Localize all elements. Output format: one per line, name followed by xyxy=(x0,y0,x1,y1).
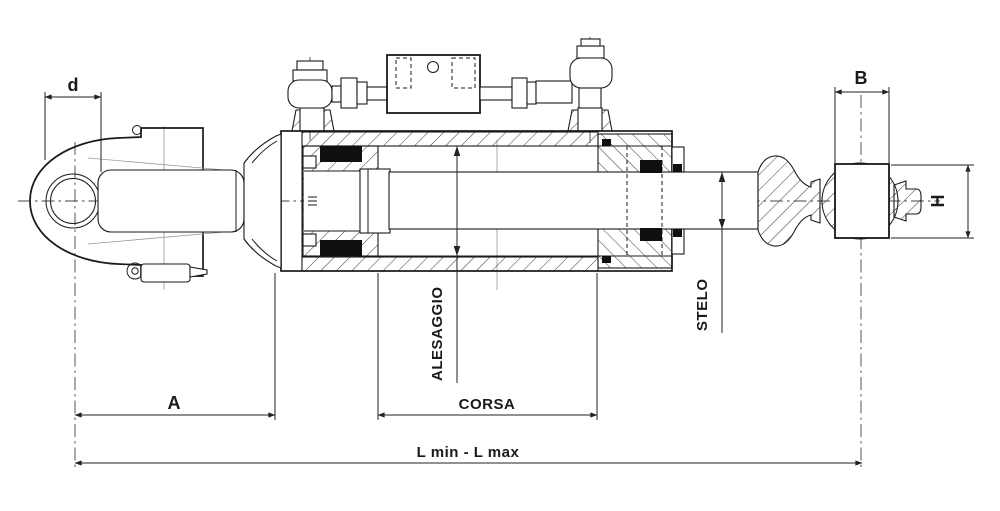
trumpet-bell xyxy=(244,134,281,268)
gland-seal-top xyxy=(640,160,662,173)
dim-label-alesaggio: ALESAGGIO xyxy=(429,286,446,381)
left-port-stem xyxy=(300,108,324,131)
piston xyxy=(303,146,390,256)
ball-housing xyxy=(835,164,889,238)
dim-label-d: d xyxy=(68,75,79,95)
left-tube xyxy=(367,87,387,100)
latch-tab xyxy=(190,267,207,277)
dimension-d: d xyxy=(45,75,101,172)
dim-label-B: B xyxy=(855,68,868,88)
dimension-overall-length: L min - L max xyxy=(75,444,862,463)
right-elbow-body xyxy=(570,58,612,88)
right-tube-ferrule xyxy=(527,82,536,104)
right-tube xyxy=(480,87,512,100)
dim-label-corsa: CORSA xyxy=(459,396,516,413)
wiper-seal-bottom xyxy=(673,229,682,237)
piston-rod xyxy=(389,172,758,229)
right-elbow-cap xyxy=(581,39,600,46)
gland-oring-bottom xyxy=(602,256,611,263)
piston-seal-top xyxy=(320,146,362,162)
right-tube-nut xyxy=(512,78,527,108)
left-elbow-body xyxy=(288,80,332,108)
gland-oring-top xyxy=(602,139,611,146)
piston-notch-top xyxy=(303,156,316,168)
dim-label-overall-length: L min - L max xyxy=(417,444,520,461)
dimension-B: B xyxy=(835,68,889,163)
latch-hinge-pin xyxy=(132,268,138,274)
barrel-wall-top xyxy=(302,132,598,146)
hydraulic-cylinder-drawing: d B H A CORSA xyxy=(0,0,1000,511)
left-elbow-outlet xyxy=(332,86,341,102)
dim-label-stelo: STELO xyxy=(694,278,711,331)
clevis-end xyxy=(30,126,281,283)
left-tube-ferrule xyxy=(357,82,367,104)
dimension-corsa: CORSA xyxy=(378,273,597,420)
gland-seal-bottom xyxy=(640,228,662,241)
piston-notch-bottom xyxy=(303,234,316,246)
right-port-stem xyxy=(578,108,602,131)
right-connector xyxy=(536,81,572,103)
ball-grease-nipple xyxy=(894,181,921,221)
valve-block xyxy=(387,55,480,113)
rod-end-collar xyxy=(758,156,820,246)
wiper-seal-top xyxy=(673,164,682,172)
left-elbow-cap xyxy=(297,61,323,70)
left-elbow-nut xyxy=(293,70,327,81)
dim-label-A: A xyxy=(168,393,181,413)
right-elbow-nut xyxy=(577,46,604,58)
rod-shoulder xyxy=(360,169,390,233)
cylinder-body xyxy=(281,131,758,271)
barrel-wall-bottom xyxy=(302,257,598,271)
dimension-A: A xyxy=(75,273,275,420)
piston-seal-bottom xyxy=(320,240,362,256)
trumpet-shaft xyxy=(98,170,244,232)
right-port-stem-upper xyxy=(579,88,601,110)
technical-drawing-page: d B H A CORSA xyxy=(0,0,1000,511)
hydraulic-fittings xyxy=(288,39,612,131)
ball-joint-end xyxy=(758,156,921,246)
latch-plate xyxy=(141,264,190,282)
dim-label-H: H xyxy=(928,195,948,208)
left-tube-nut xyxy=(341,78,357,108)
fork-inner-edge-top xyxy=(88,158,236,171)
fork-inner-edge-bottom xyxy=(88,231,236,244)
